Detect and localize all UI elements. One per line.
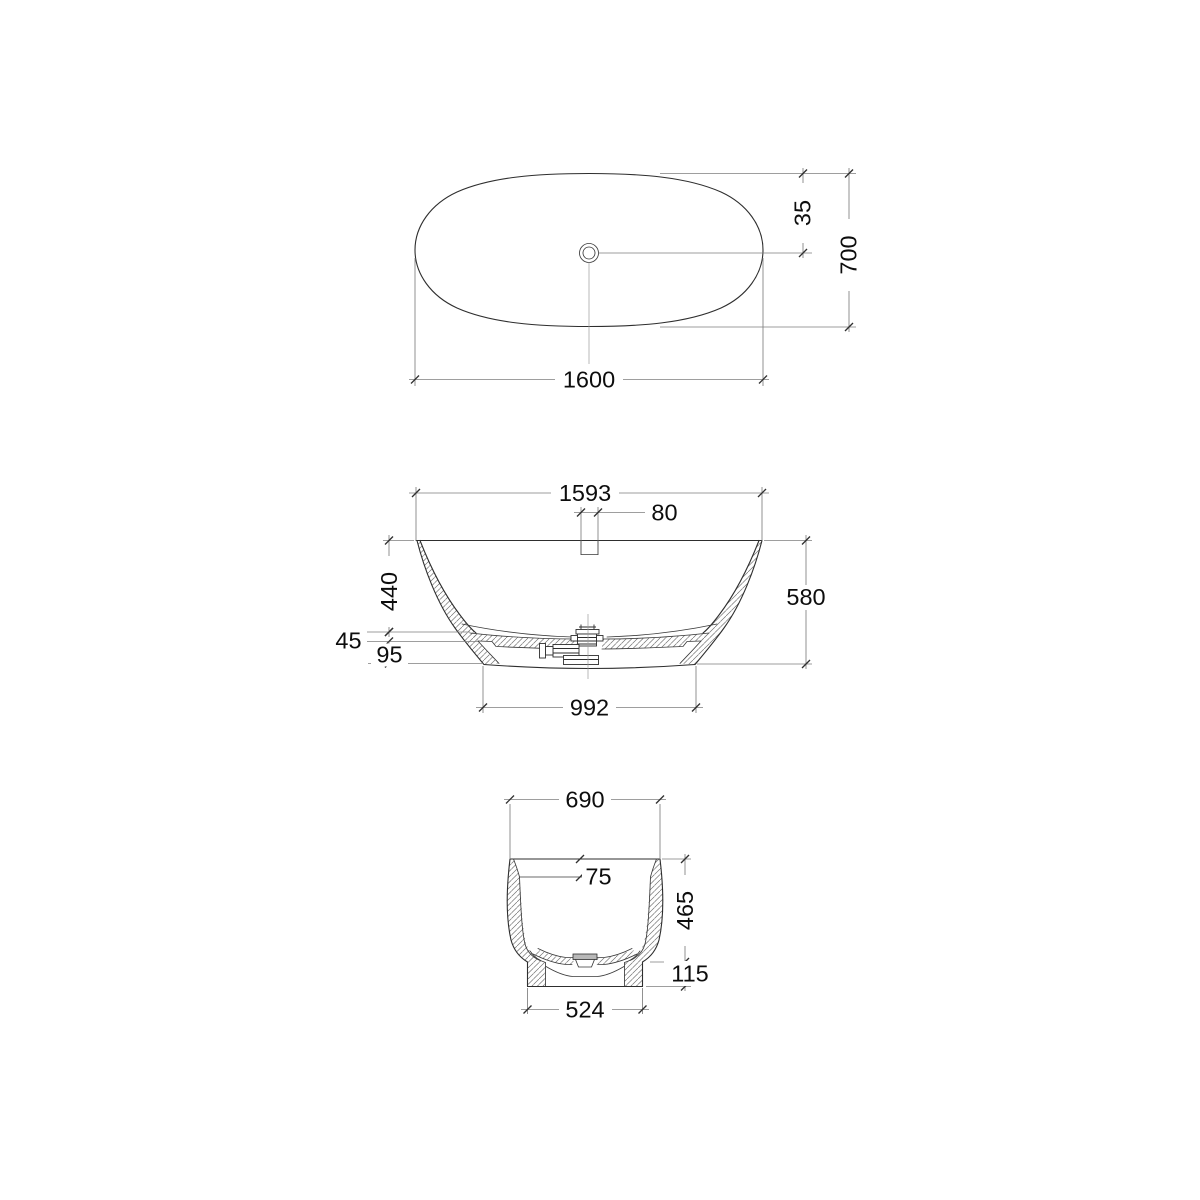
technical-drawing-canvas: 35 700 1600 (0, 0, 1200, 1200)
drain-symbol (580, 244, 599, 263)
left-wall-section-hatch (417, 541, 499, 665)
dim-front-base-height: 95 (376, 642, 402, 668)
side-left-wall-hatch (507, 859, 545, 987)
dim-overall-height: 580 (786, 584, 825, 610)
dim-rim-to-floor-depth: 440 (376, 572, 402, 611)
dim-drain-offset: 35 (790, 200, 816, 226)
dim-overflow-width: 80 (651, 500, 677, 526)
dim-plan-overall-width: 700 (836, 235, 862, 274)
right-wall-section-hatch (680, 541, 762, 665)
dim-floor-thickness: 45 (335, 628, 361, 654)
side-right-wall-hatch (625, 859, 663, 987)
front-section-view: 1593 80 440 45 95 580 (330, 480, 830, 721)
plan-view: 35 700 1600 (409, 168, 862, 393)
overflow-slot (581, 541, 598, 555)
dim-side-base-height: 115 (671, 961, 708, 987)
dim-plan-overall-length: 1600 (563, 367, 615, 393)
dim-front-rim-length: 1593 (559, 480, 611, 506)
dim-inner-depth: 465 (672, 891, 698, 930)
dim-side-base-width: 524 (565, 997, 604, 1023)
dim-side-rim-width: 690 (565, 787, 604, 813)
dim-base-length: 992 (570, 695, 609, 721)
side-section-view: 690 75 465 115 524 (504, 787, 716, 1023)
dim-rim-edge-height: 75 (585, 864, 611, 890)
technical-drawing-page: 35 700 1600 (0, 0, 1200, 1200)
side-drain-recess (573, 954, 597, 967)
